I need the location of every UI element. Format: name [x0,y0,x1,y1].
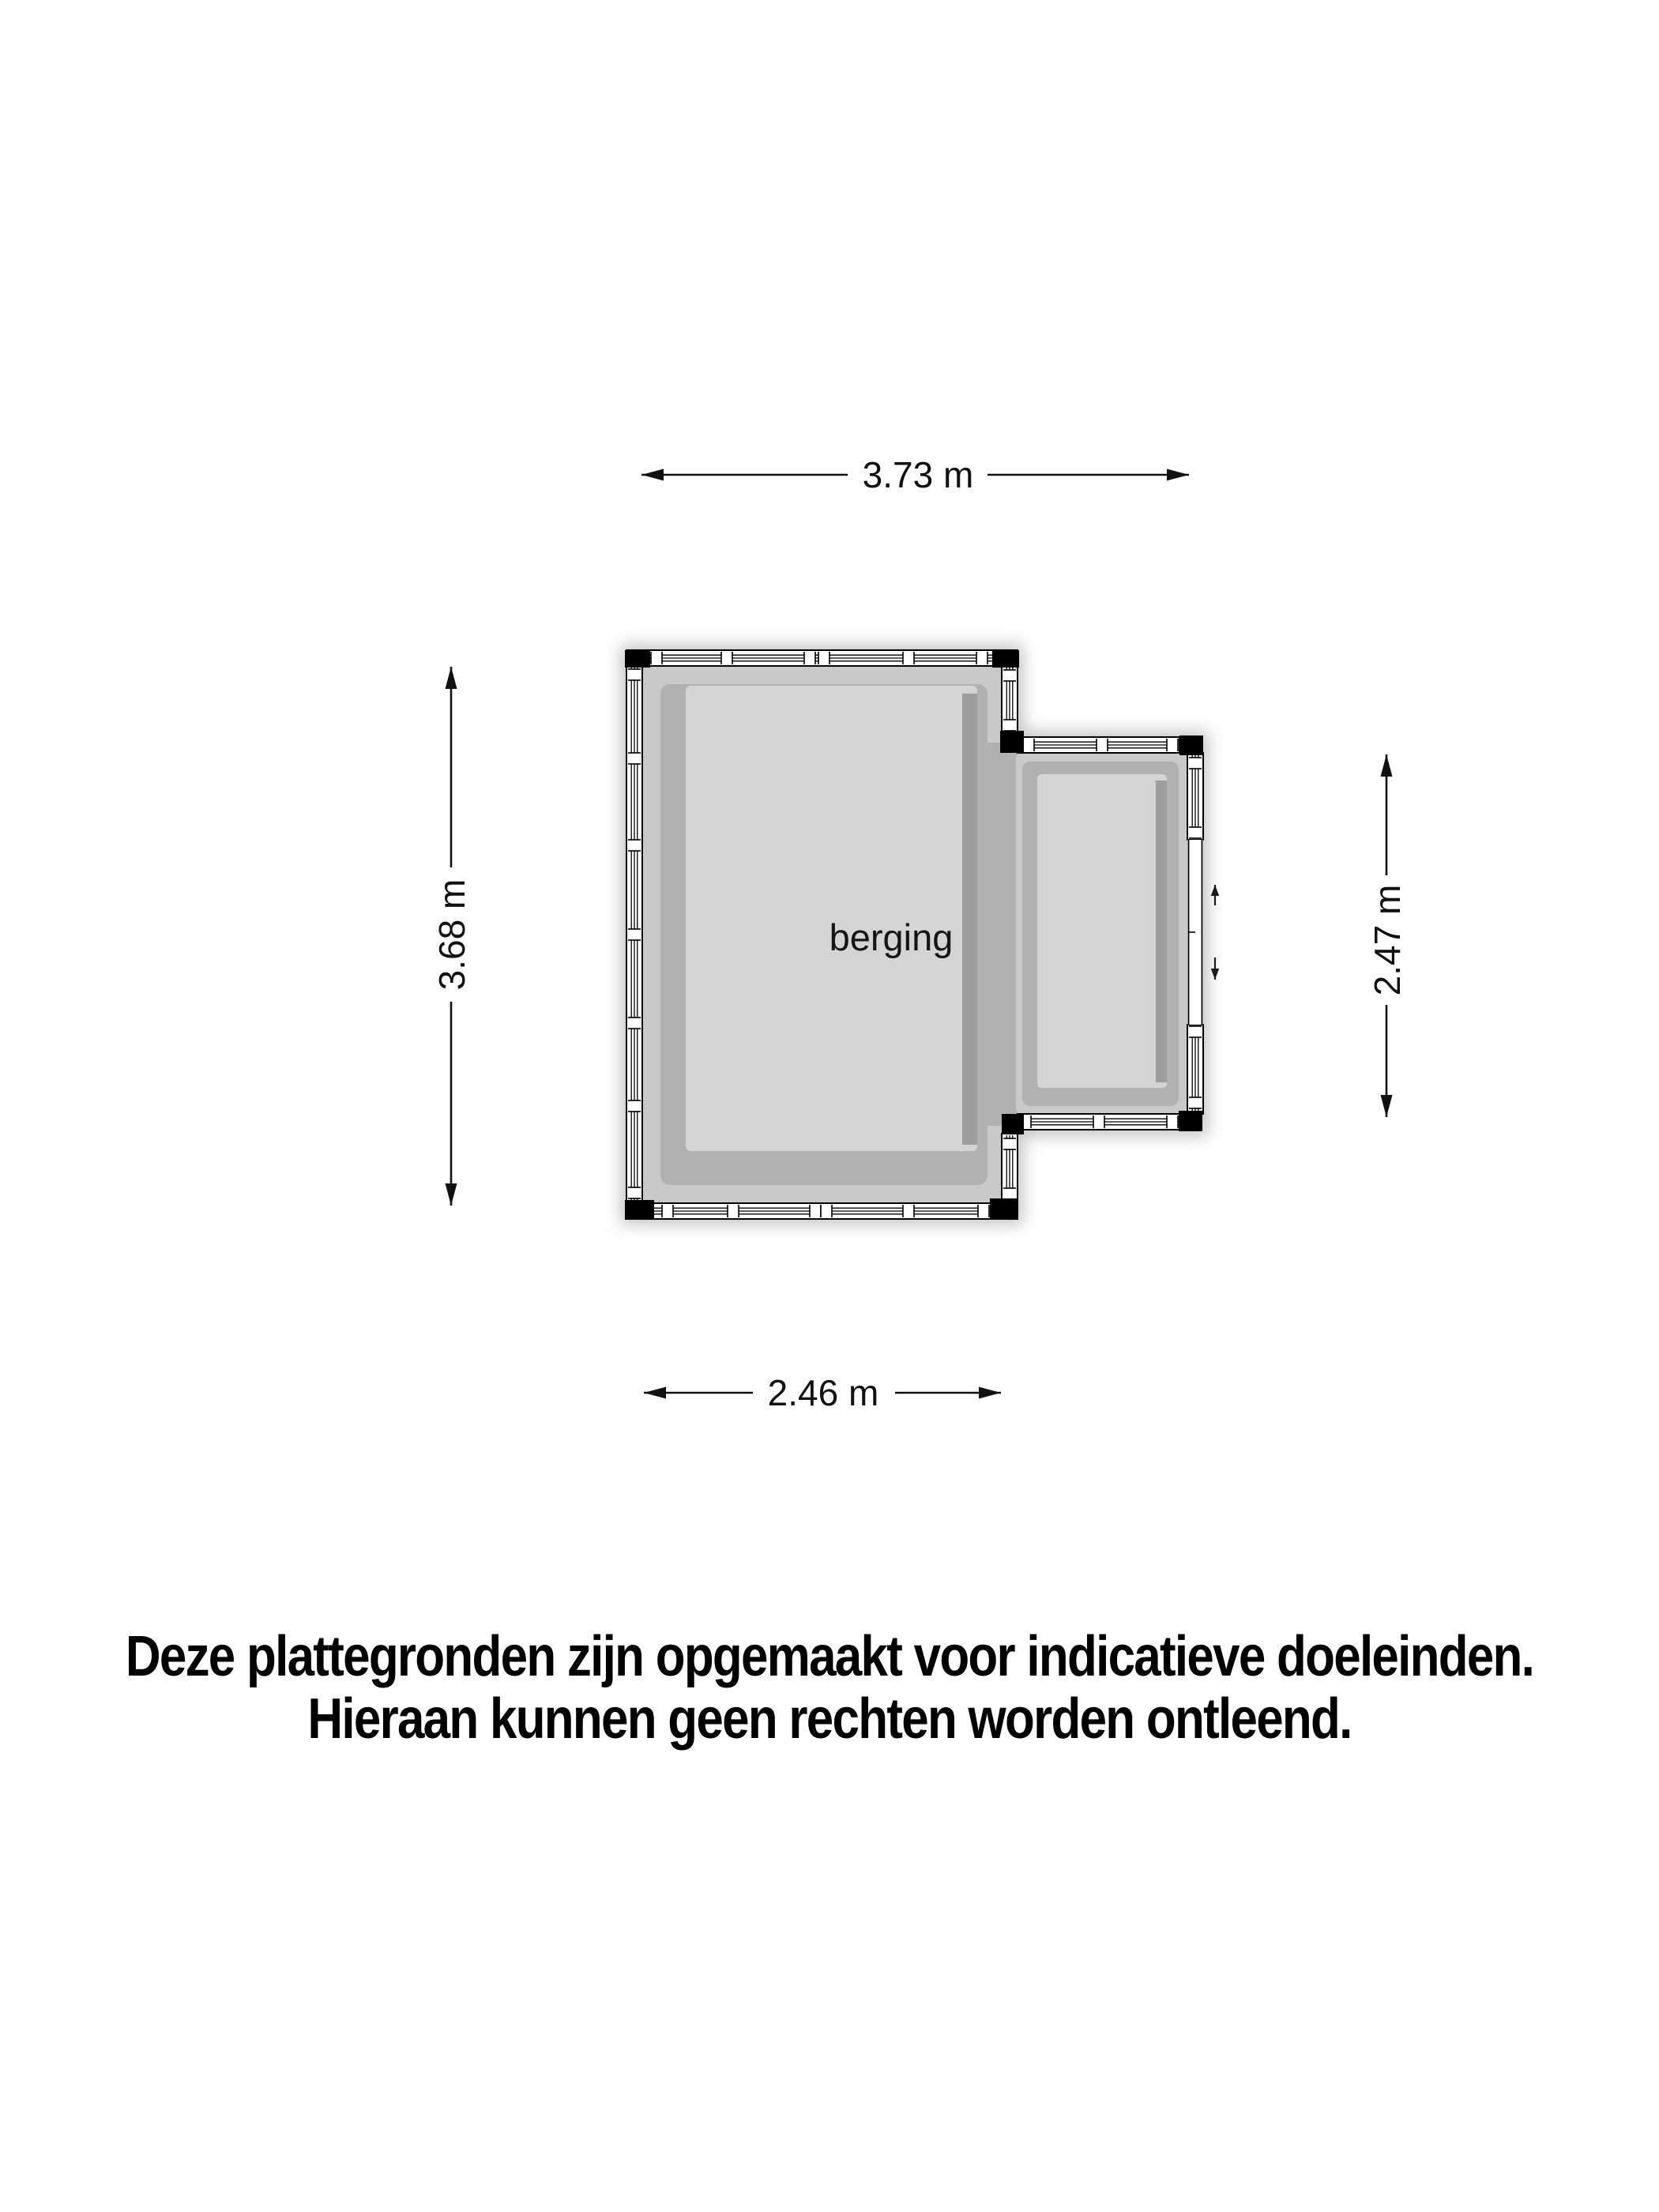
glazing-wall [626,650,642,1219]
glazing-wall [626,1203,1018,1219]
disclaimer-line-1: Deze plattegronden zijn opgemaakt voor i… [116,1626,1543,1688]
annex-floor [1037,774,1167,1088]
wall-corner-post [1179,1111,1202,1131]
glazing-wall [1002,1134,1018,1203]
glazing-wall [1018,1114,1180,1130]
disclaimer-line-2: Hieraan kunnen geen rechten worden ontle… [116,1688,1543,1751]
disclaimer: Deze plattegronden zijn opgemaakt voor i… [116,1626,1543,1751]
wall-corner-post [625,650,650,668]
glazing-wall [626,650,1018,666]
wall-corner-post [1000,731,1024,753]
annex-room [1016,751,1189,1115]
dimension-right-label: 2.47 m [1367,885,1408,996]
dimension-bottom-label: 2.46 m [768,1372,879,1413]
dimension-right: 2.47 m [1367,754,1408,1117]
wall-corner-post [992,650,1019,668]
floor-plan-canvas: 3.73 m 2.46 m 3.68 m 2.47 m berging [0,0,1659,2212]
dimension-left-label: 3.68 m [431,879,472,991]
glazing-wall [1002,666,1018,732]
wall-corner-post [990,1198,1017,1220]
main-room-shadow-strip [962,694,977,1145]
wall-corner-post [625,1200,654,1220]
dimension-left: 3.68 m [431,667,472,1206]
room-label: berging [829,916,954,958]
glazing-wall [1018,737,1179,753]
dimension-top: 3.73 m [641,454,1189,495]
wall-corner-post [1002,1114,1024,1134]
glazing-wall [1187,1025,1203,1114]
wall-corner-post [1179,735,1203,755]
glazing-wall [1187,753,1203,840]
sliding-door [1187,840,1203,1025]
dimension-bottom: 2.46 m [644,1372,1001,1413]
annex-shadow-strip [1156,781,1167,1082]
dimension-top-label: 3.73 m [863,454,974,495]
